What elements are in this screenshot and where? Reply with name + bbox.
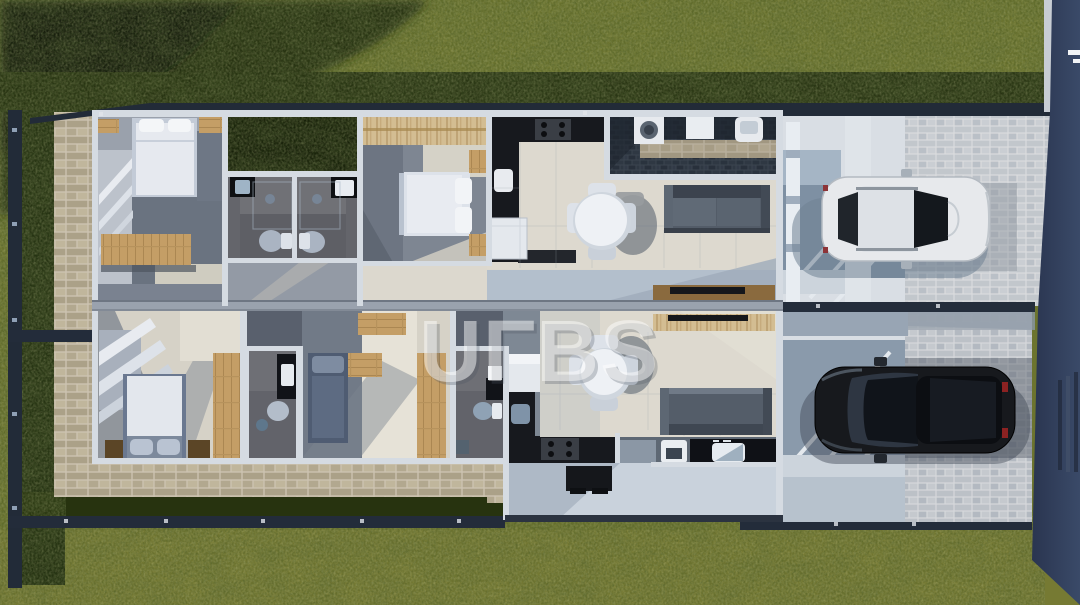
svg-text:UΓBS: UΓBS bbox=[419, 303, 659, 400]
